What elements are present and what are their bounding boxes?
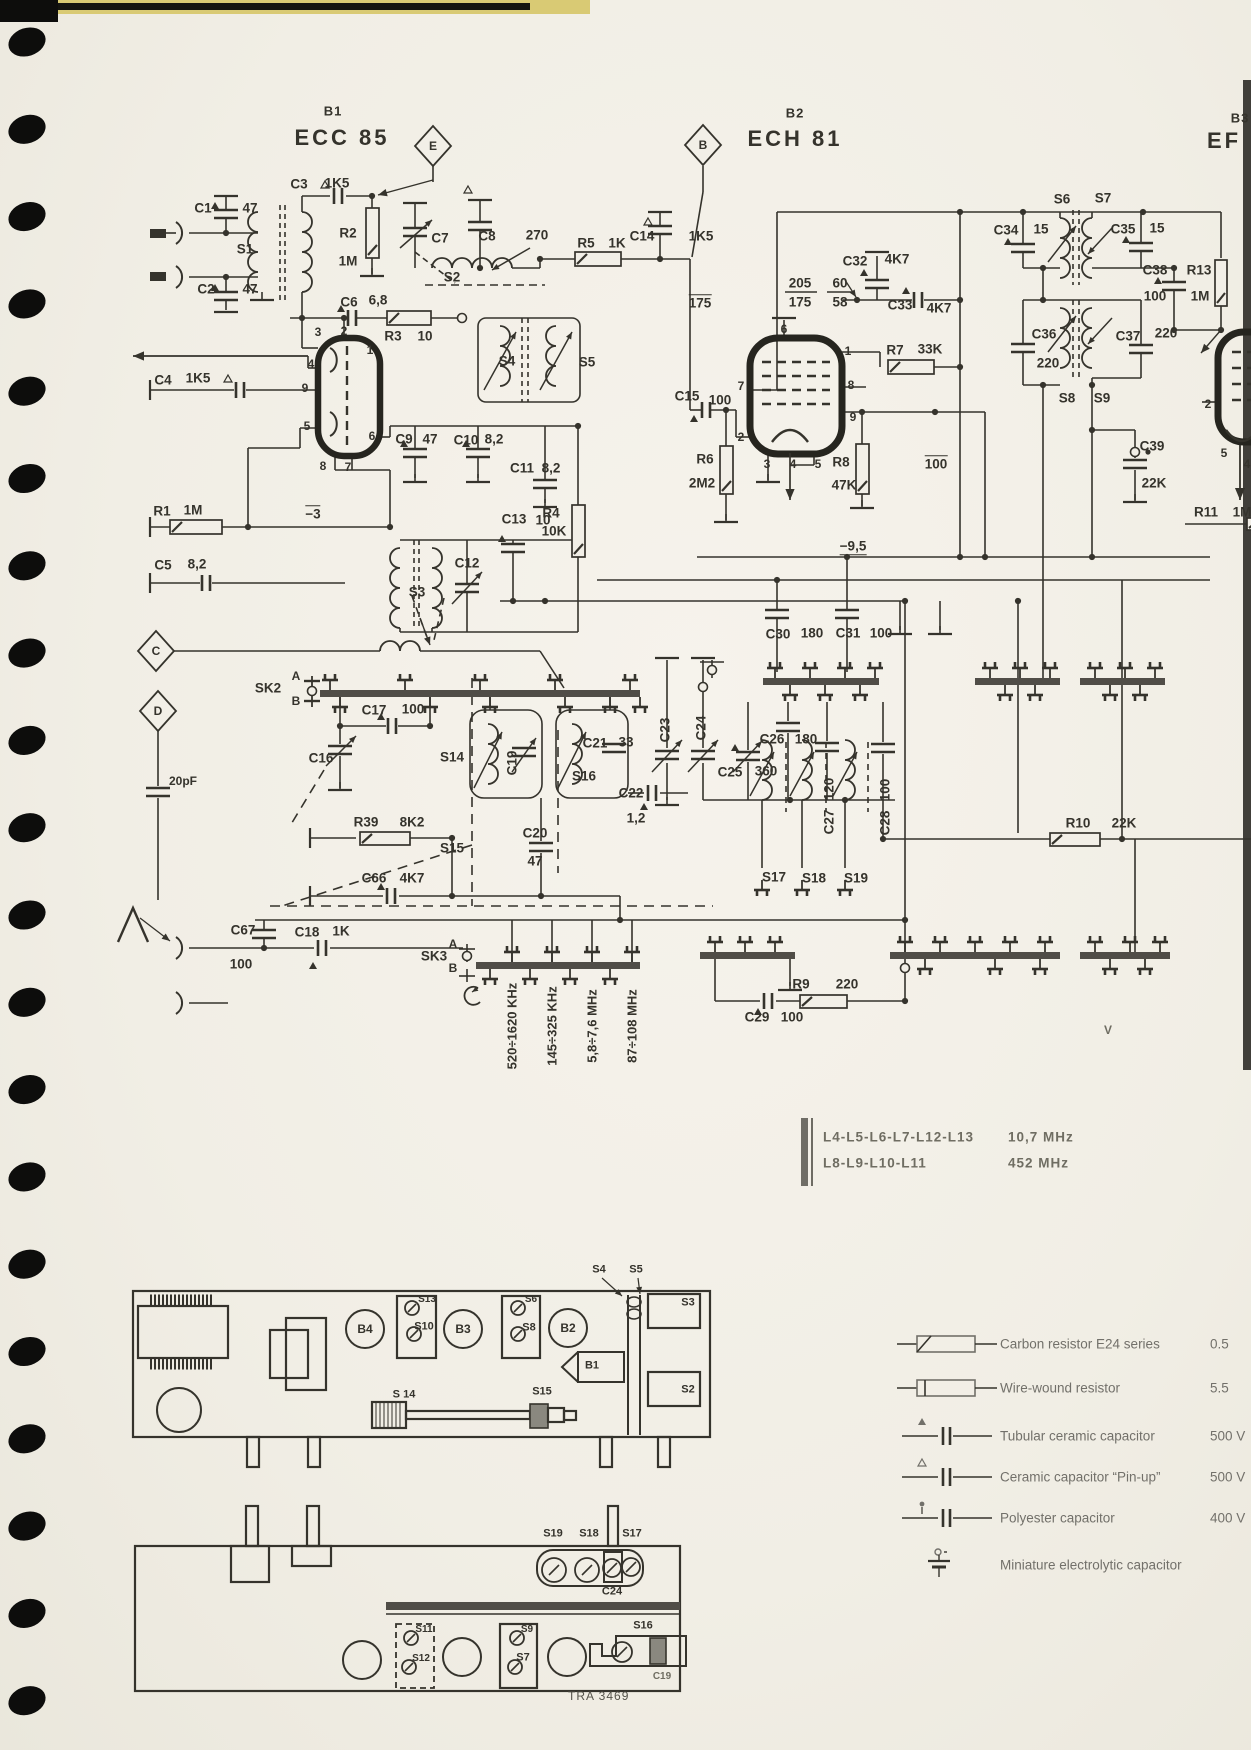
label-c66: C66 xyxy=(362,871,387,885)
label-c34-v: 15 xyxy=(1033,222,1048,236)
label-s6: S6 xyxy=(1054,192,1071,206)
label-r2-v: 1M xyxy=(339,254,358,268)
label-c67: C67 xyxy=(231,923,256,937)
label-vm95: −9,5 xyxy=(840,539,867,555)
label-legend-polyester-capacitor-value: 400 V xyxy=(1210,1511,1245,1525)
label-r8: R8 xyxy=(832,455,849,469)
label-c16: C16 xyxy=(309,751,334,765)
label-c39-v: 22K xyxy=(1142,476,1167,490)
label-pin-b2-5: 5 xyxy=(815,458,822,470)
label-c29-v: 100 xyxy=(781,1010,804,1024)
label-ch-s10: S10 xyxy=(414,1322,434,1333)
label-r1-v: 1M xyxy=(184,503,203,517)
label-c10-v: 8,2 xyxy=(485,432,504,446)
label-pf20: 20pF xyxy=(169,775,197,787)
label-c1-v: 47 xyxy=(242,201,257,215)
label-c38: C38 xyxy=(1143,263,1168,277)
label-c30-v: 180 xyxy=(801,626,824,640)
label-sk3-b: B xyxy=(449,962,458,974)
label-c28: C28 xyxy=(878,811,892,836)
label-v205: 205 xyxy=(789,276,812,290)
label-c6-v: 6,8 xyxy=(369,293,388,307)
label-v-right-edge: V xyxy=(1104,1024,1112,1036)
label-r6-v: 2M2 xyxy=(689,476,715,490)
label-s18: S18 xyxy=(802,871,826,885)
label-c10: C10 xyxy=(454,433,479,447)
label-legend-tubular-ceramic-capacitor: Tubular ceramic capacitor xyxy=(1000,1429,1155,1443)
label-s1: S1 xyxy=(237,242,254,256)
label-sk3: SK3 xyxy=(421,949,447,963)
label-s16: S16 xyxy=(572,769,596,783)
label-c9: C9 xyxy=(395,432,412,446)
label-c15-v: 100 xyxy=(709,393,732,407)
label-s17: S17 xyxy=(762,870,786,884)
label-legend-ceramic-capacitor-pinup-value: 500 V xyxy=(1210,1470,1245,1484)
label-c36: C36 xyxy=(1032,327,1057,341)
label-c30: C30 xyxy=(766,627,791,641)
label-ch2-s9: S9 xyxy=(521,1625,533,1635)
label-s2: S2 xyxy=(444,270,461,284)
label-legend-carbon-resistor-value: 0.5 xyxy=(1210,1337,1229,1351)
label-v175: 175 xyxy=(689,294,712,310)
label-c35: C35 xyxy=(1111,222,1136,236)
labels-layer: EBCDC147S1C247C31K5R21MC66,8R310C7C8270S… xyxy=(0,0,1251,1750)
label-tag-c: C xyxy=(152,645,161,657)
label-tube-ref-B3: B3 xyxy=(1231,112,1250,125)
label-v60: 60 xyxy=(832,276,847,290)
label-coil-row-1: L8-L9-L10-L11 xyxy=(823,1156,927,1170)
label-r1: R1 xyxy=(153,504,170,518)
label-c34: C34 xyxy=(994,223,1019,237)
label-c14-v: 1K5 xyxy=(689,229,714,243)
label-legend-carbon-resistor: Carbon resistor E24 series xyxy=(1000,1337,1160,1351)
label-pin-b3-4: 4 xyxy=(1244,458,1251,470)
label-r7-v: 33K xyxy=(918,342,943,356)
label-s15: S15 xyxy=(440,841,464,855)
label-r11: R11 xyxy=(1194,505,1218,519)
label-r8-v: 47K xyxy=(832,478,857,492)
label-s14: S14 xyxy=(440,750,464,764)
label-c27-v: 120 xyxy=(822,778,836,801)
label-c3: C3 xyxy=(290,177,307,191)
label-coil-row-0: L4-L5-L6-L7-L12-L13 xyxy=(823,1130,974,1144)
label-pin-b1-2: 2 xyxy=(341,325,348,337)
label-c31: C31 xyxy=(836,626,861,640)
label-sk2-b: B xyxy=(292,695,301,707)
label-c17-v: 100 xyxy=(402,702,425,716)
label-tube-ref-B2: B2 xyxy=(786,107,805,120)
label-pin-b1-3: 3 xyxy=(315,326,322,338)
label-c38-v: 100 xyxy=(1144,289,1167,303)
label-tube-type-B1: ECC 85 xyxy=(294,127,389,149)
label-c11-v: 8,2 xyxy=(542,461,561,475)
label-tube-type-B3: EF xyxy=(1207,130,1241,152)
label-c19: C19 xyxy=(505,751,519,776)
label-sk2-a: A xyxy=(292,670,301,682)
label-tag-e: E xyxy=(429,140,437,152)
label-pin-b1-5: 5 xyxy=(304,420,311,432)
label-ch2-s19: S19 xyxy=(543,1529,563,1540)
label-ch-s8: S8 xyxy=(522,1323,535,1334)
label-c9-v: 47 xyxy=(422,432,437,446)
label-c6: C6 xyxy=(340,295,357,309)
label-s19: S19 xyxy=(844,871,868,885)
label-r13-v: 1M xyxy=(1191,289,1210,303)
label-pin-b1-7: 7 xyxy=(345,461,352,473)
label-c22-v: 1,2 xyxy=(627,811,646,825)
label-c2: C2 xyxy=(197,282,214,296)
label-ch2-s18: S18 xyxy=(579,1529,599,1540)
label-v175b: 175 xyxy=(789,295,812,309)
label-c25-v: 360 xyxy=(755,764,778,778)
label-s4: S4 xyxy=(499,354,516,368)
label-s9: S9 xyxy=(1094,391,1111,405)
label-s7: S7 xyxy=(1095,191,1112,205)
label-legend-wire-wound-resistor-value: 5.5 xyxy=(1210,1381,1229,1395)
label-c35-v: 15 xyxy=(1149,221,1164,235)
label-c32: C32 xyxy=(843,254,868,268)
label-band-1: 145÷325 KHz xyxy=(546,986,559,1065)
label-c22: C22 xyxy=(619,786,644,800)
label-c2-v: 47 xyxy=(242,282,257,296)
label-c27: C27 xyxy=(822,810,836,835)
label-pin-b1-4: 4 xyxy=(308,358,315,370)
label-tube-ref-B1: B1 xyxy=(324,105,343,118)
label-band-3: 87÷108 MHz xyxy=(626,989,639,1063)
label-pin-b2-2: 2 xyxy=(738,431,745,443)
label-c66-v: 4K7 xyxy=(400,871,425,885)
label-c17: C17 xyxy=(362,703,387,717)
label-pin-b2-4: 4 xyxy=(790,458,797,470)
label-legend-wire-wound-resistor: Wire-wound resistor xyxy=(1000,1381,1120,1395)
label-c11: C11 xyxy=(510,461,534,475)
label-ch2-s11: S11 xyxy=(415,1625,432,1635)
label-band-0: 520÷1620 KHz xyxy=(506,983,519,1070)
label-c26: C26 xyxy=(760,732,785,746)
label-ch-b3: B3 xyxy=(455,1323,470,1335)
label-c21-v: 33 xyxy=(618,735,633,749)
label-ch2-c19: C19 xyxy=(653,1672,671,1682)
label-pin-b3-5: 5 xyxy=(1221,447,1228,459)
label-c33-v: 4K7 xyxy=(927,301,952,315)
label-c3-v: 1K5 xyxy=(325,176,350,190)
label-pin-b1-1: 1 xyxy=(367,344,374,356)
label-c36-v: 220 xyxy=(1037,356,1060,370)
label-ch-b2: B2 xyxy=(560,1322,575,1334)
label-c21: C21 xyxy=(583,736,608,750)
label-s5: S5 xyxy=(579,355,596,369)
label-c5-v: 8,2 xyxy=(188,557,207,571)
label-ch-s13: S13 xyxy=(418,1295,436,1305)
label-pin-b2-1: 1 xyxy=(845,345,852,357)
label-c28-v: 100 xyxy=(878,779,892,802)
label-tube-type-B2: ECH 81 xyxy=(747,128,842,150)
label-ch2-c24: C24 xyxy=(602,1587,622,1598)
label-c37-v: 220 xyxy=(1155,326,1178,340)
label-r4-v: 10K xyxy=(542,524,567,538)
label-sk2: SK2 xyxy=(255,681,281,695)
label-v100: 100 xyxy=(925,455,948,471)
doc-number: TRA 3469 xyxy=(568,1690,629,1702)
label-ch2-s12: S12 xyxy=(412,1654,430,1664)
label-s8: S8 xyxy=(1059,391,1076,405)
label-c26-v: 180 xyxy=(795,732,818,746)
label-pin-b2-3: 3 xyxy=(764,458,771,470)
label-v58: 58 xyxy=(832,295,847,309)
label-r2: R2 xyxy=(339,226,356,240)
label-c1: C1 xyxy=(194,201,211,215)
label-c33: C33 xyxy=(888,298,913,312)
label-c24: C24 xyxy=(694,716,708,741)
label-c25: C25 xyxy=(718,765,743,779)
label-c39: C39 xyxy=(1140,439,1165,453)
label-ch2-s7: S7 xyxy=(516,1653,529,1664)
label-pin-b3-2: 2 xyxy=(1205,398,1212,410)
label-ch-b1: B1 xyxy=(585,1361,599,1372)
label-coil-freq-1: 452 MHz xyxy=(1008,1156,1069,1170)
label-pin-b2-6: 6 xyxy=(781,323,788,335)
label-c14: C14 xyxy=(630,229,655,243)
label-pin-b1-8: 8 xyxy=(320,460,327,472)
label-c31-v: 100 xyxy=(870,626,893,640)
label-r3: R3 xyxy=(384,329,401,343)
label-r13: R13 xyxy=(1187,263,1212,277)
label-r4: R4 xyxy=(542,506,559,520)
label-ch-s5: S5 xyxy=(629,1265,642,1276)
label-r10-v: 22K xyxy=(1112,816,1137,830)
label-ch-s6: S6 xyxy=(525,1295,537,1305)
label-ch-s4: S4 xyxy=(592,1265,605,1276)
label-c8: C8 xyxy=(478,229,495,243)
label-r7: R7 xyxy=(886,343,903,357)
label-c29: C29 xyxy=(745,1010,770,1024)
label-c4-v: 1K5 xyxy=(186,371,211,385)
label-c20-v: 47 xyxy=(527,854,542,868)
label-legend-polyester-capacitor: Polyester capacitor xyxy=(1000,1511,1115,1525)
label-ch-b4: B4 xyxy=(357,1323,372,1335)
label-ch-s14: S 14 xyxy=(393,1390,416,1401)
label-tag-d: D xyxy=(154,705,163,717)
label-sk3-a: A xyxy=(449,938,458,950)
label-legend-tubular-ceramic-capacitor-value: 500 V xyxy=(1210,1429,1245,1443)
label-r6: R6 xyxy=(696,452,713,466)
label-vm3: −3 xyxy=(305,505,320,521)
label-c18-v: 1K xyxy=(332,924,349,938)
label-c4: C4 xyxy=(154,373,171,387)
label-ch-s15: S15 xyxy=(532,1387,552,1398)
label-c67-v: 100 xyxy=(230,957,253,971)
label-r5: R5 xyxy=(577,236,594,250)
label-band-2: 5,8÷7,6 MHz xyxy=(586,989,599,1063)
label-coil-freq-0: 10,7 MHz xyxy=(1008,1130,1074,1144)
label-c12: C12 xyxy=(455,556,480,570)
label-tag-b: B xyxy=(699,139,708,151)
label-r3-v: 10 xyxy=(417,329,432,343)
label-c8-v: 270 xyxy=(526,228,549,242)
label-ch2-s17: S17 xyxy=(622,1529,642,1540)
label-r10: R10 xyxy=(1066,816,1091,830)
label-c5: C5 xyxy=(154,558,171,572)
label-legend-ceramic-capacitor-pinup: Ceramic capacitor “Pin-up” xyxy=(1000,1470,1161,1484)
label-r9: R9 xyxy=(792,977,809,991)
label-ch-s3: S3 xyxy=(681,1298,694,1309)
label-pin-b2-9: 9 xyxy=(850,411,857,423)
label-c20: C20 xyxy=(523,826,548,840)
label-ch2-s16: S16 xyxy=(633,1621,653,1632)
label-c37: C37 xyxy=(1116,329,1141,343)
label-c32-v: 4K7 xyxy=(885,252,910,266)
label-c7: C7 xyxy=(431,231,448,245)
label-legend-miniature-electrolytic-capacitor: Miniature electrolytic capacitor xyxy=(1000,1558,1182,1572)
label-r39: R39 xyxy=(354,815,379,829)
label-c13: C13 xyxy=(502,512,527,526)
label-r5-v: 1K xyxy=(608,236,625,250)
label-c15: C15 xyxy=(675,389,700,403)
label-pin-b1-9: 9 xyxy=(302,382,309,394)
label-pin-b2-8: 8 xyxy=(848,379,855,391)
label-r39-v: 8K2 xyxy=(400,815,425,829)
label-pin-b1-6: 6 xyxy=(369,430,376,442)
label-r9-v: 220 xyxy=(836,977,859,991)
label-c18: C18 xyxy=(295,925,320,939)
label-pin-b2-7: 7 xyxy=(738,380,745,392)
label-c23: C23 xyxy=(658,718,672,743)
label-s3: S3 xyxy=(409,585,426,599)
label-ch-s2: S2 xyxy=(681,1385,694,1396)
label-r11-v: 1M xyxy=(1233,505,1251,519)
